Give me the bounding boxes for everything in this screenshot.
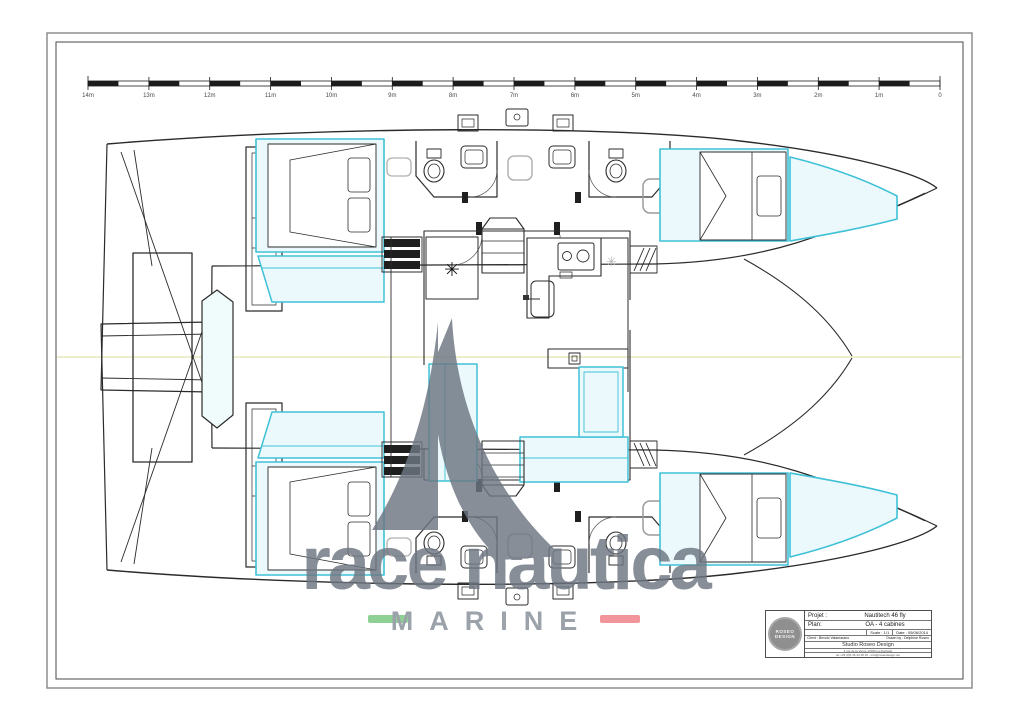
aft-berth-mattress [268,144,376,247]
drawn-by-text: Drawn by : Delphine Roseo [886,636,929,640]
tick-label: 3m [753,93,761,99]
tick-label: 10m [326,93,338,99]
red-dash [600,615,640,623]
watermark-subtitle-text: MARINE [391,606,594,636]
tick-label: 6m [571,93,579,99]
project-value: Nautitech 46 fly [842,613,928,619]
date-text: Date : 05/06/2014 [892,630,931,635]
title-block: ROSEO DESIGN Projet : Nautitech 46 fly P… [765,610,932,658]
toilet [606,160,626,182]
plan-value: OA - 4 cabines [842,622,928,628]
studio-contact: tel +33 (0)5 46 44 18 10 - info@roseodes… [805,653,931,657]
roseo-design-logo: ROSEO DESIGN [766,611,805,657]
hull-entry-steps [382,237,422,272]
stairs-port [482,218,524,273]
shower-hatch [508,156,532,180]
tick-label: 2m [814,93,822,99]
logo-text-line2: DESIGN [775,634,795,639]
tick-label: 7m [510,93,518,99]
snowflake-icon: ✳ [606,254,617,269]
tick-label: 12m [204,93,216,99]
title-block-table: Projet : Nautitech 46 fly Plan: OA - 4 c… [805,611,931,657]
sideboard [548,349,628,368]
tick-label: 1m [875,93,883,99]
cockpit-table [202,290,233,428]
tick-label: 8m [449,93,457,99]
tick-label: 0 [938,93,942,99]
watermark-brand-text: race nautica [301,521,712,606]
forward-cabin [660,149,897,241]
side-step-hatch [630,246,657,273]
tick-label: 11m [265,93,276,99]
scale-bar: 14m 13m 12m 11m 10m 9m 8m 7m 6m 5m 4m 3m… [82,76,942,99]
transom-steps [101,144,212,392]
tick-label: 4m [692,93,700,99]
tick-label: 5m [632,93,640,99]
plan-row: Plan: OA - 4 cabines [805,621,931,630]
tick-label: 14m [82,93,94,99]
tick-label: 9m [388,93,396,99]
v-berth-highlight [790,157,897,241]
drawing-page: 14m 13m 12m 11m 10m 9m 8m 7m 6m 5m 4m 3m… [0,0,1013,722]
door-swing [470,170,497,197]
porthole [387,158,411,176]
roseo-design-logo-circle: ROSEO DESIGN [768,617,802,651]
project-label: Projet : [808,613,842,619]
project-row: Projet : Nautitech 46 fly [805,611,931,621]
cockpit-bench [258,256,384,302]
foredeck-edge [744,358,852,455]
scale-bar-labels: 14m 13m 12m 11m 10m 9m 8m 7m 6m 5m 4m 3m… [82,93,942,99]
toilet [424,160,444,182]
client-text: Client : Bevolo Valamarano [807,636,849,640]
foredeck-edge [744,259,852,356]
tick-label: 13m [143,93,155,99]
plan-label: Plan: [808,622,842,628]
snowflake-icon: ✳ [444,260,460,281]
door-swing [589,170,616,197]
scale-text: Scale : 1/1 [866,630,892,635]
deck-fittings [458,109,573,131]
